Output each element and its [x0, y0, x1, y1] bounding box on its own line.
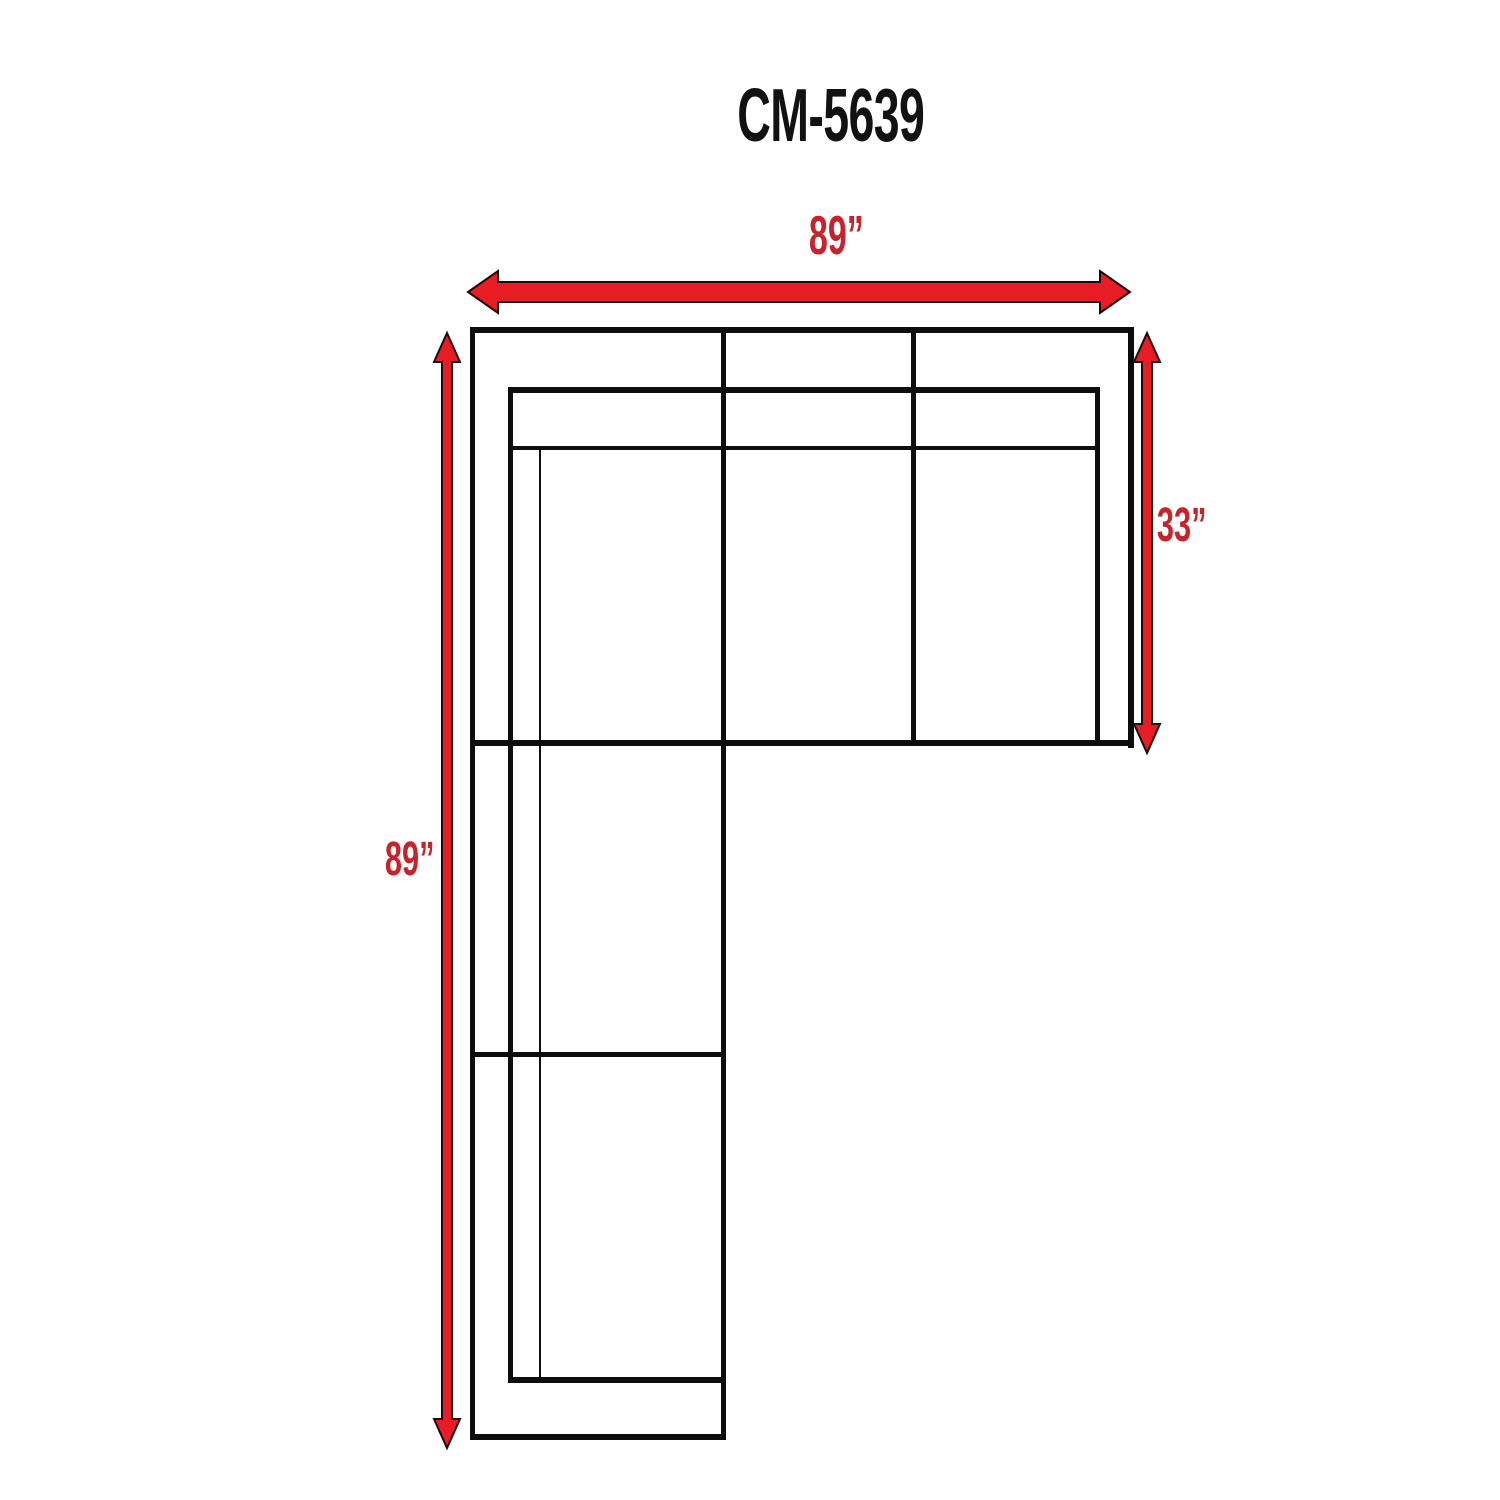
- depth-arrow-shape: [1134, 333, 1160, 753]
- lower-section-seat-divider: [470, 1052, 726, 1057]
- sofa-outer-right-edge: [1128, 327, 1134, 748]
- lower-section-inner-bottom-edge: [508, 1377, 726, 1383]
- depth-arrow-icon: [1133, 331, 1161, 755]
- height-dimension-text: 89”: [385, 836, 435, 884]
- height-arrow-shape: [434, 333, 460, 1448]
- width-dimension-text: 89”: [809, 208, 864, 263]
- sofa-outer-bottom-edge: [470, 1434, 726, 1440]
- depth-dimension-text: 33”: [1157, 502, 1207, 550]
- armrest-inner-right-edge: [1095, 387, 1100, 746]
- sofa-outer-top-edge: [470, 327, 1134, 333]
- backrest-inner-left-edge: [508, 387, 513, 1383]
- sofa-outer-left-edge: [470, 327, 475, 1440]
- height-dimension-label: 89”: [260, 836, 560, 884]
- page-title: CM-5639: [531, 78, 1131, 153]
- seat-left-thin-line: [539, 446, 541, 1383]
- top-section-seat-divider-1: [721, 327, 726, 746]
- sofa-top-section-bottom-edge: [470, 740, 1134, 746]
- height-arrow-icon: [433, 331, 461, 1450]
- sofa-dimension-diagram: CM-5639 89” 33” 89”: [0, 0, 1500, 1500]
- sofa-lower-section-right-edge: [721, 740, 726, 1440]
- depth-dimension-label: 33”: [1032, 502, 1332, 550]
- model-number-text: CM-5639: [738, 78, 925, 153]
- width-arrow-icon: [466, 269, 1132, 315]
- top-section-seat-divider-2: [911, 327, 916, 746]
- backrest-inner-top-edge: [508, 387, 1100, 393]
- seat-front-line: [508, 446, 1097, 450]
- width-arrow-shape: [468, 271, 1130, 313]
- width-dimension-label: 89”: [636, 208, 1036, 263]
